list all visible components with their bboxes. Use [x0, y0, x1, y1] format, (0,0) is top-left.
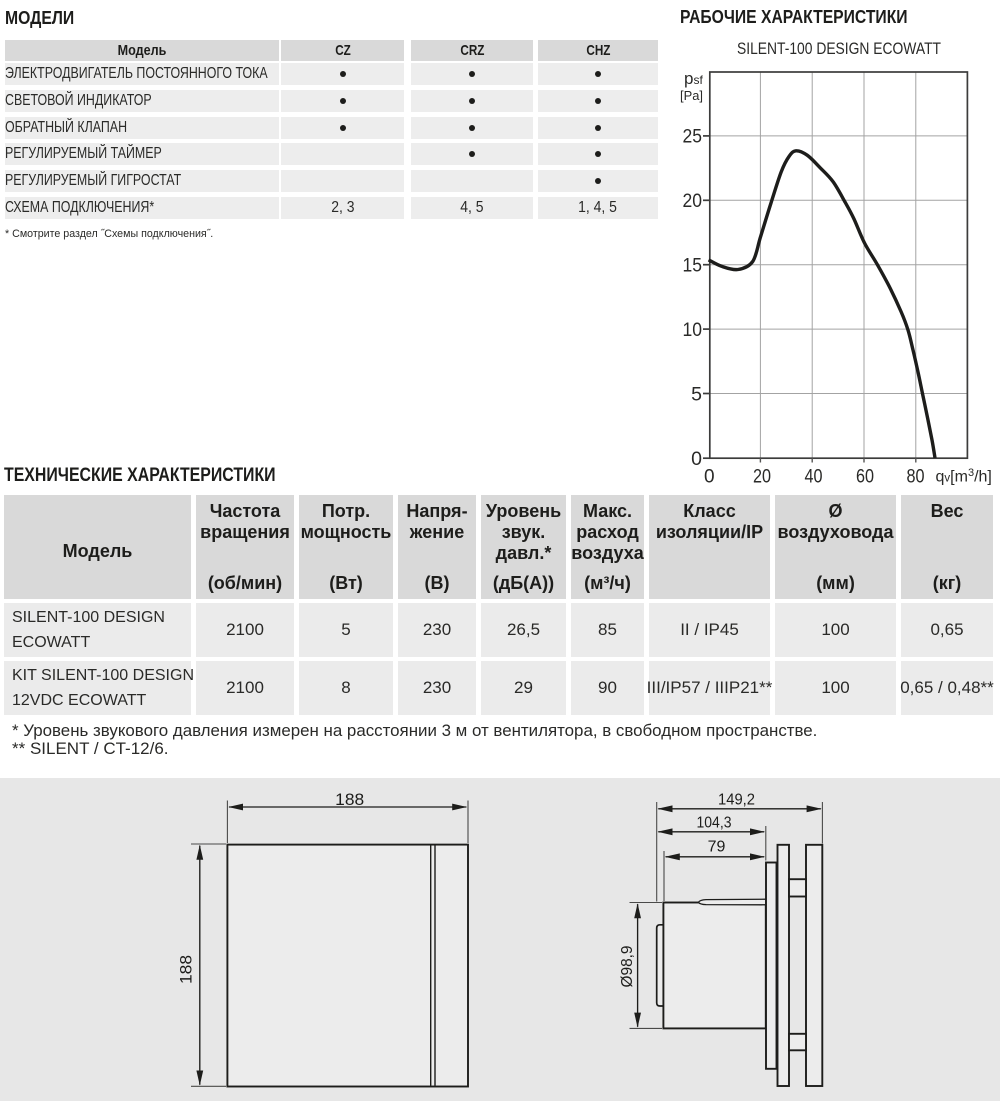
svg-text:5: 5 [691, 383, 702, 405]
svg-text:188: 188 [335, 791, 364, 809]
svg-text:104,3: 104,3 [697, 815, 732, 832]
svg-text:Ø98,9: Ø98,9 [619, 945, 636, 987]
svg-text:0: 0 [691, 448, 702, 470]
svg-text:80: 80 [907, 467, 925, 488]
svg-text:psf: psf [684, 69, 703, 88]
svg-text:188: 188 [178, 955, 196, 984]
svg-text:15: 15 [683, 255, 703, 277]
svg-text:20: 20 [753, 467, 771, 488]
svg-text:[Pa]: [Pa] [680, 89, 703, 103]
svg-text:0: 0 [704, 467, 715, 488]
svg-text:40: 40 [805, 467, 823, 488]
svg-text:10: 10 [683, 319, 703, 341]
svg-text:qv[m3/h]: qv[m3/h] [936, 467, 992, 486]
svg-text:SILENT-100 DESIGN ECOWATT: SILENT-100 DESIGN ECOWATT [737, 39, 941, 58]
svg-text:20: 20 [683, 190, 703, 212]
svg-text:25: 25 [683, 126, 703, 148]
svg-text:79: 79 [708, 838, 726, 855]
svg-text:60: 60 [856, 467, 874, 488]
svg-text:149,2: 149,2 [718, 792, 755, 809]
